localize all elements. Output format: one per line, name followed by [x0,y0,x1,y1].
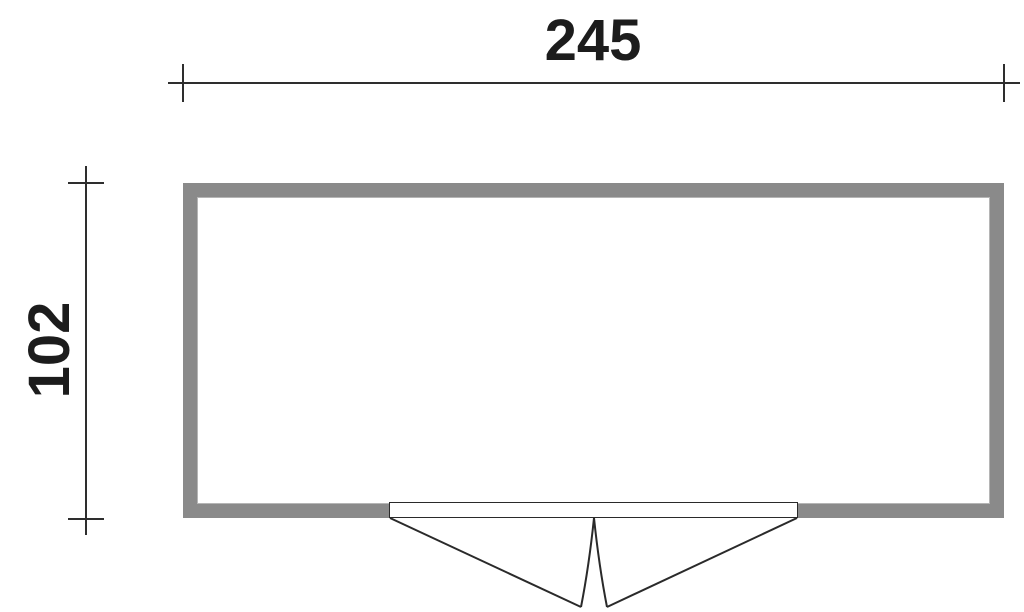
left-dimension-bottom-tick [68,518,104,520]
door-swing-arc-left [581,518,594,607]
door-swing-arc-right [594,518,607,607]
top-dimension-left-tick [182,64,184,102]
top-dimension-right-tick [1003,64,1005,102]
door-leaf-left-line [390,518,581,607]
top-dimension-line [168,82,1020,84]
door-leaf-right-line [607,518,797,607]
left-dimension-top-tick [68,182,104,184]
floorplan-canvas: 245 102 [0,0,1024,612]
left-dimension-line [85,166,87,535]
width-dimension-label: 245 [493,10,693,72]
door-threshold [389,502,798,518]
height-dimension-label: 102 [20,250,80,450]
building-interior [197,197,990,504]
